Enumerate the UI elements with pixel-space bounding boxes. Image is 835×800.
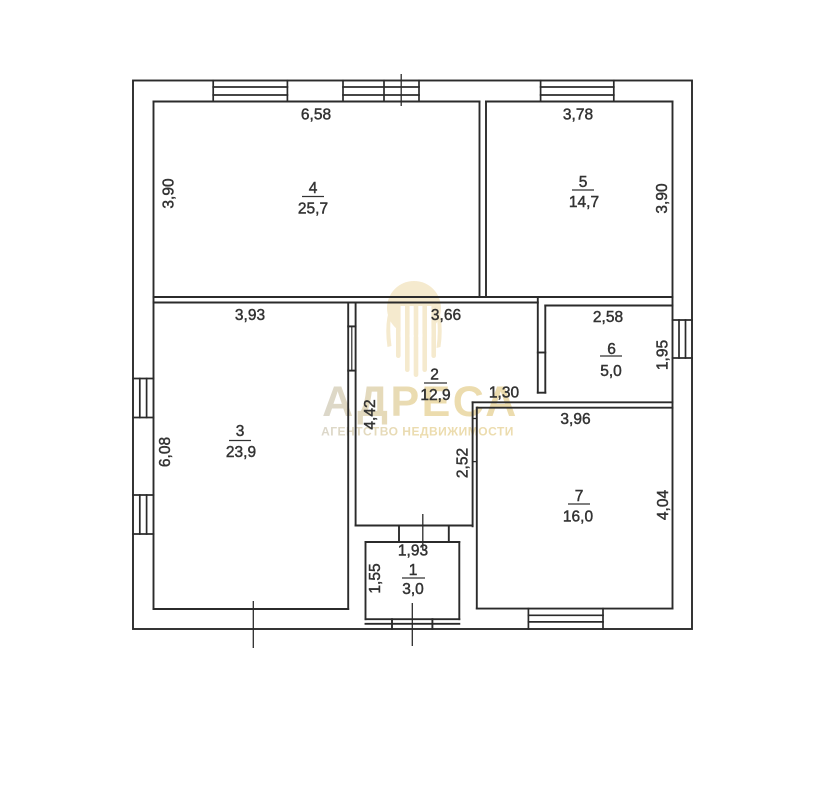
svg-text:4,04: 4,04 [655, 490, 672, 521]
svg-text:6,58: 6,58 [301, 107, 331, 124]
svg-text:3,0: 3,0 [402, 581, 424, 598]
svg-text:3,96: 3,96 [560, 411, 590, 428]
svg-text:2,58: 2,58 [593, 309, 623, 326]
svg-text:3: 3 [236, 423, 245, 440]
svg-text:АГЕНТСТВО НЕДВИЖИМОСТИ: АГЕНТСТВО НЕДВИЖИМОСТИ [321, 425, 514, 439]
svg-text:3,90: 3,90 [654, 183, 671, 214]
svg-text:2: 2 [430, 367, 439, 384]
svg-text:5: 5 [579, 174, 588, 191]
svg-text:12,9: 12,9 [420, 387, 450, 404]
svg-text:4,42: 4,42 [362, 399, 379, 429]
svg-text:1,93: 1,93 [398, 543, 428, 560]
svg-text:3,78: 3,78 [563, 107, 593, 124]
svg-text:1,95: 1,95 [655, 340, 672, 370]
svg-text:7: 7 [575, 488, 584, 505]
svg-text:5,0: 5,0 [600, 363, 622, 380]
svg-text:16,0: 16,0 [563, 509, 594, 526]
svg-text:3,90: 3,90 [161, 178, 178, 209]
svg-text:1: 1 [409, 562, 418, 579]
svg-text:4: 4 [309, 180, 318, 197]
svg-text:23,9: 23,9 [226, 444, 256, 461]
svg-text:6,08: 6,08 [157, 437, 174, 467]
svg-text:1,30: 1,30 [489, 385, 520, 402]
svg-text:3,66: 3,66 [431, 307, 461, 324]
svg-text:2,52: 2,52 [455, 448, 472, 478]
svg-text:3,93: 3,93 [235, 307, 265, 324]
svg-text:1,55: 1,55 [367, 563, 384, 593]
svg-text:14,7: 14,7 [569, 194, 599, 211]
svg-text:25,7: 25,7 [298, 201, 328, 218]
